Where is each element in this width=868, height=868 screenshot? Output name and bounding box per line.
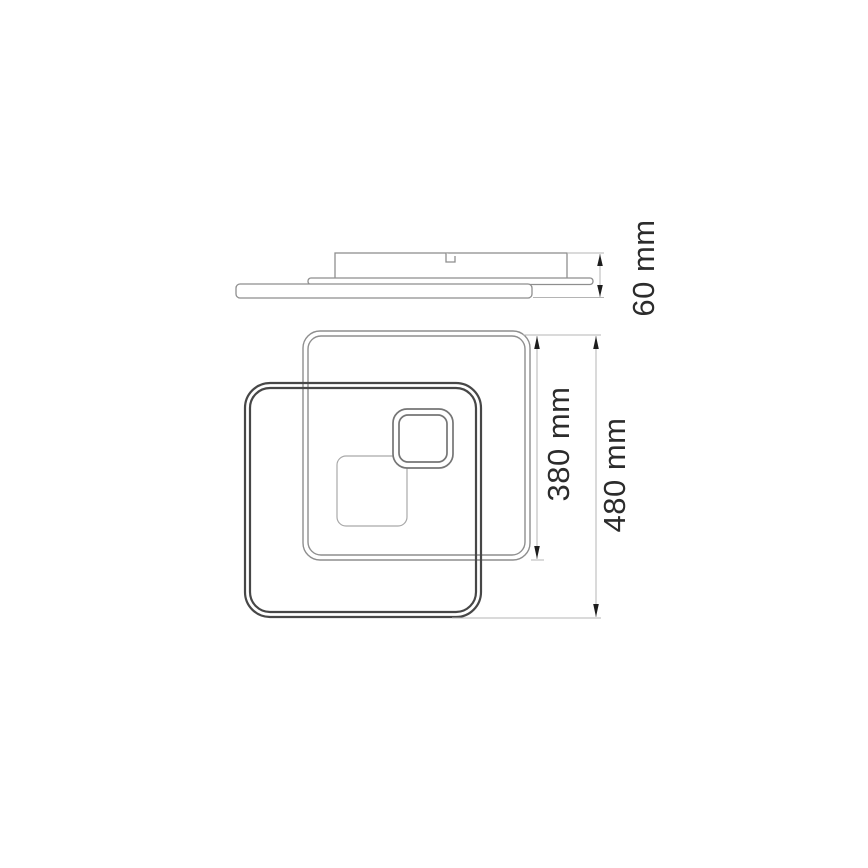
dimension-label-depth: 60 mm	[626, 219, 661, 316]
inner-panel-square	[337, 456, 407, 526]
dimension-label-frame: 380 mm	[541, 387, 576, 502]
inner-ring-square	[393, 409, 453, 468]
side-view: 60 mm	[236, 219, 661, 316]
front-view: 380 mm 480 mm	[245, 331, 632, 618]
dimension-drawing-page: 60 mm	[0, 0, 868, 868]
dimension-frame: 380 mm	[531, 336, 576, 560]
arrow-up-icon	[534, 336, 540, 349]
dimension-diagram: 60 mm	[0, 0, 868, 868]
dimension-label-overall: 480 mm	[597, 418, 632, 533]
arrow-up-icon	[593, 336, 599, 349]
arrow-down-icon	[593, 604, 599, 617]
arrow-down-icon	[597, 285, 603, 297]
arrow-down-icon	[534, 546, 540, 559]
front-frame-profile	[236, 284, 532, 298]
arrow-up-icon	[597, 254, 603, 266]
